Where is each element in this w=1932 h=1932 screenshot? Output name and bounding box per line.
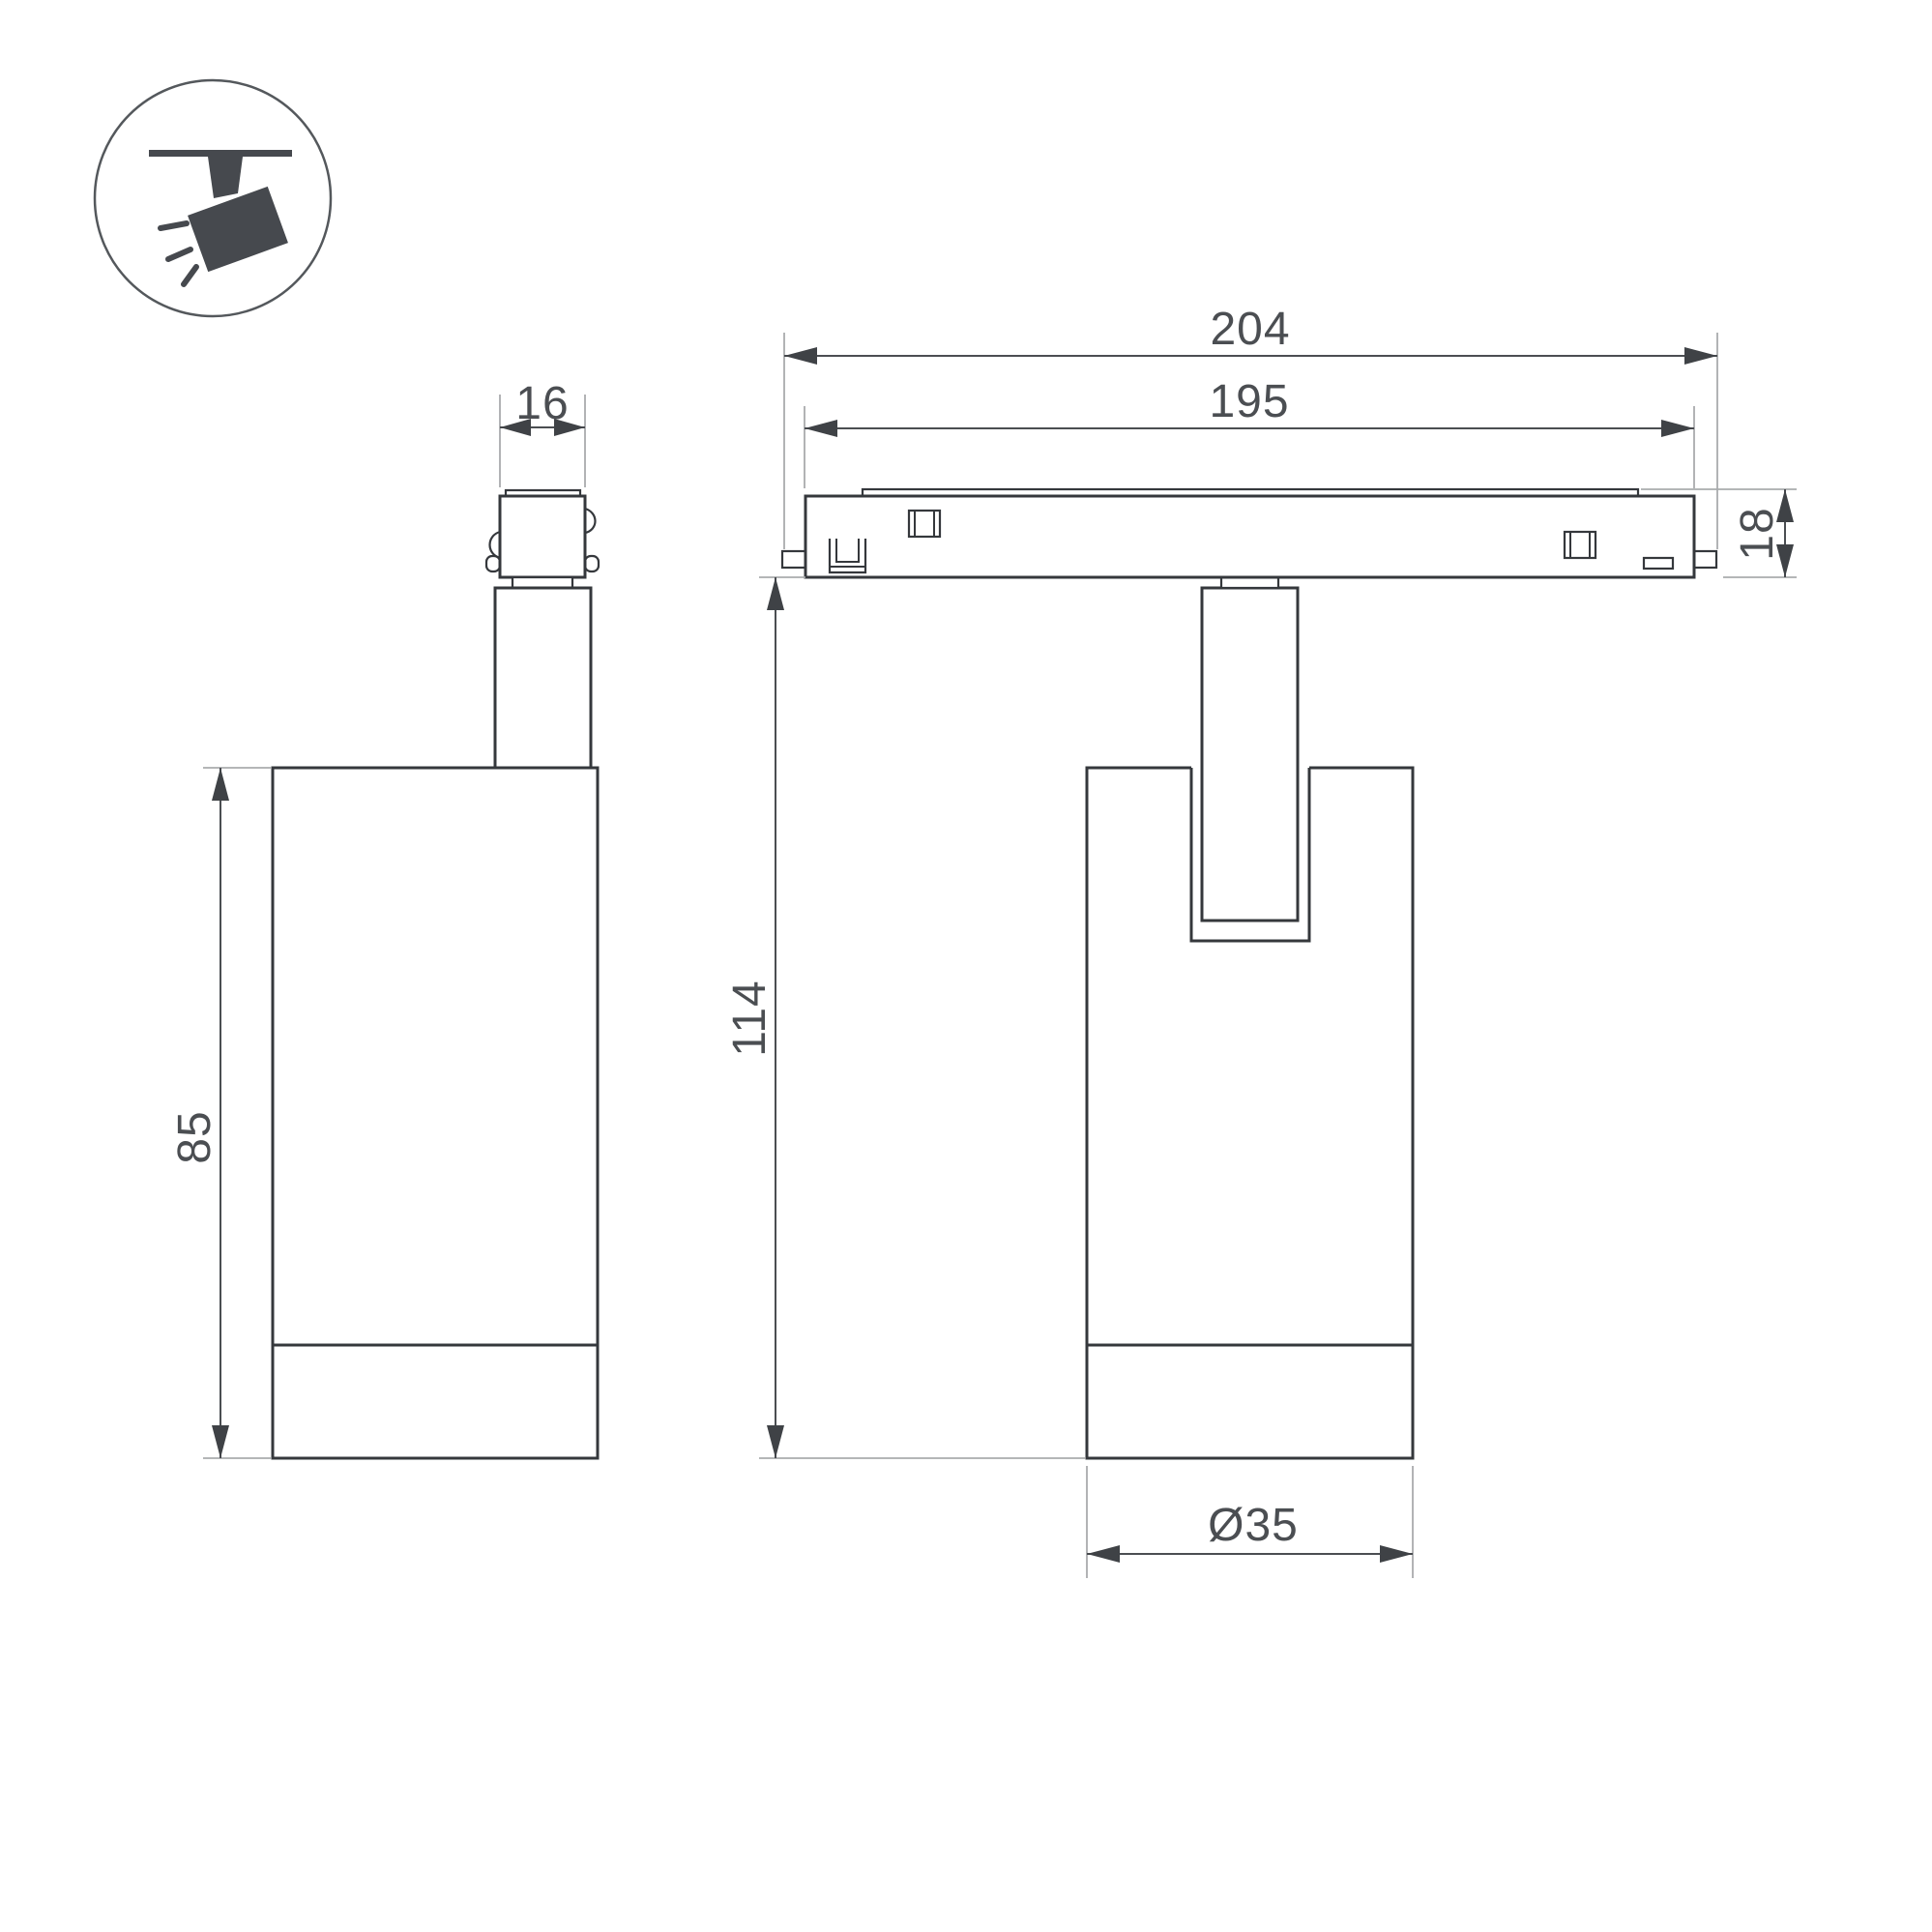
arrowhead [767,577,784,610]
front-view [782,489,1716,1458]
arrowhead [212,1425,229,1458]
adapter-side-arc [490,532,501,558]
adapter-neck [512,577,572,588]
adapter-block [500,496,585,577]
technical-drawing-canvas: 16 204 195 18 114 [0,0,1932,1932]
dimension-overall-height: 114 [724,577,1085,1458]
adapter-ear [486,556,500,571]
adapter-ear [585,556,599,571]
dimension-track-body-length: 195 [805,376,1694,488]
pivot-stem [495,588,591,768]
dimension-label-195: 195 [1209,376,1289,427]
luminaire-body-side [273,768,598,1458]
dimension-label-diameter-35: Ø35 [1208,1500,1299,1551]
arrowhead [1684,347,1717,365]
dimension-body-diameter: Ø35 [1087,1466,1413,1578]
stem-neck [1221,577,1278,588]
adapter-side-arc [585,509,596,533]
arrowhead [1087,1545,1120,1563]
dimension-body-height: 85 [169,768,271,1458]
arrowhead [767,1425,784,1458]
arrowhead [805,420,837,437]
dimension-label-18: 18 [1732,507,1783,560]
icon-ceiling-track [149,150,292,157]
dimension-label-204: 204 [1210,304,1290,355]
arrowhead [212,768,229,801]
track-end-tab-right [1694,551,1716,568]
arrowhead [1661,420,1694,437]
icon-mount-stem [208,157,243,198]
side-view [273,490,599,1458]
arrowhead [1380,1545,1413,1563]
technical-drawing: 16 204 195 18 114 [0,0,1932,1932]
track-end-tab-left [782,551,805,568]
icon-circle-border [95,80,331,316]
pivot-stem [1202,588,1298,921]
dimension-label-16: 16 [515,378,569,429]
arrowhead [784,347,817,365]
track-spotlight-icon [95,80,331,316]
dimension-label-85: 85 [169,1110,220,1163]
dimension-label-114: 114 [724,980,776,1057]
dimension-adapter-width: 16 [500,378,585,487]
